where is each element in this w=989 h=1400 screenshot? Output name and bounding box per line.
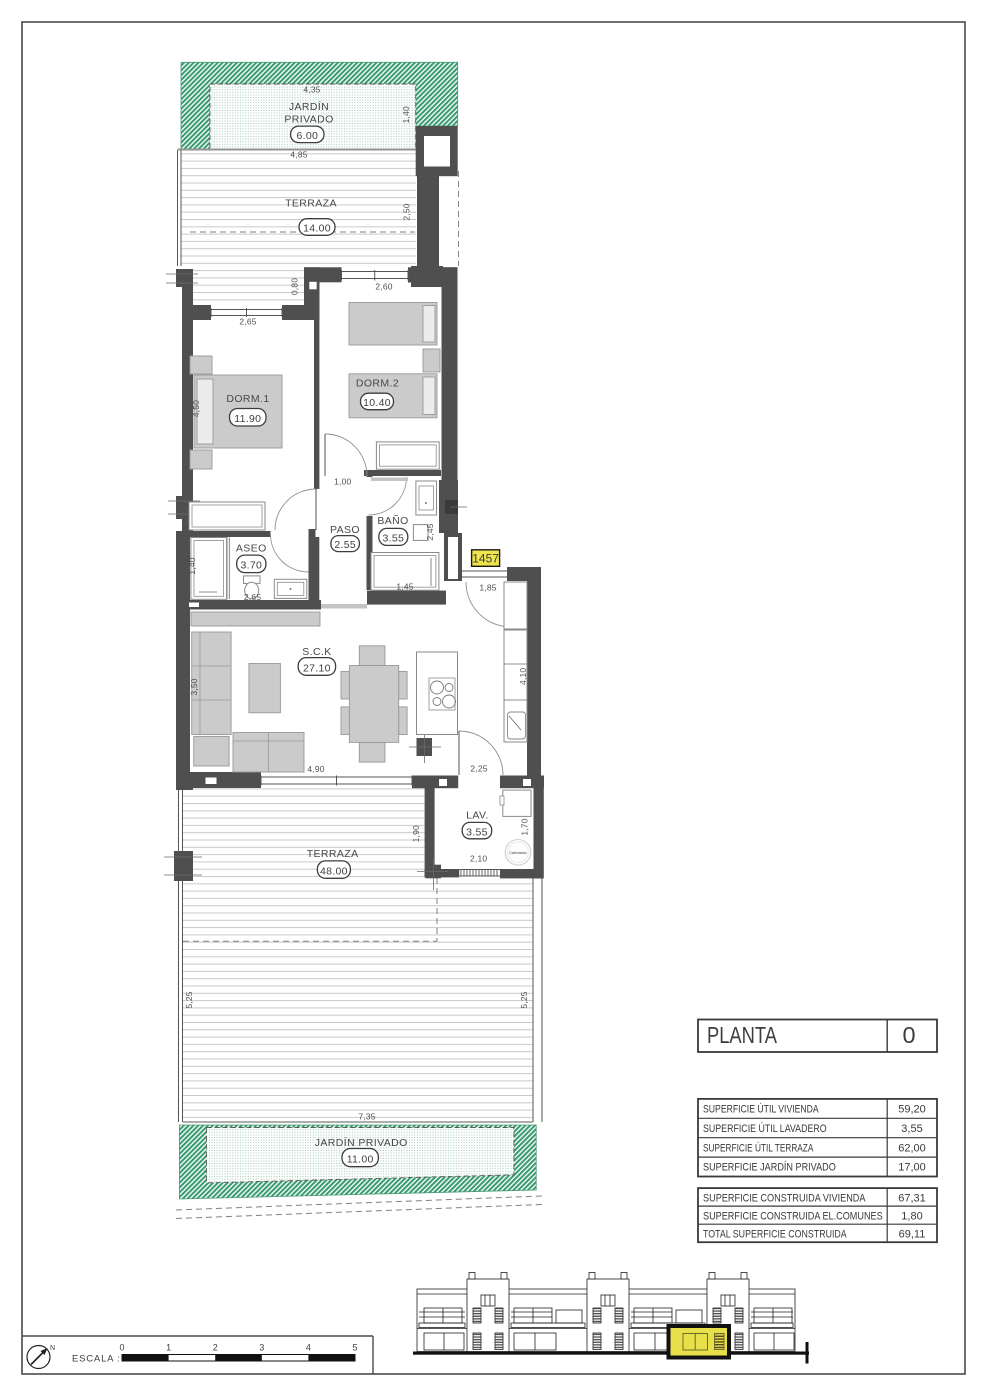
svg-text:PRIVADO: PRIVADO [284, 114, 333, 126]
svg-text:SUPERFICIE CONSTRUIDA VIVIENDA: SUPERFICIE CONSTRUIDA VIVIENDA [703, 1192, 866, 1204]
svg-text:59,20: 59,20 [898, 1104, 926, 1116]
svg-text:11.00: 11.00 [347, 1154, 374, 1166]
svg-text:11.90: 11.90 [234, 413, 261, 425]
svg-text:17,00: 17,00 [898, 1162, 926, 1174]
svg-text:N: N [50, 1345, 55, 1352]
svg-text:7,35: 7,35 [358, 1112, 375, 1122]
svg-text:1,45: 1,45 [396, 582, 413, 592]
svg-text:0: 0 [119, 1343, 124, 1353]
svg-text:SUPERFICIE JARDÍN PRIVADO: SUPERFICIE JARDÍN PRIVADO [703, 1161, 836, 1174]
svg-text:2.55: 2.55 [334, 539, 356, 551]
svg-text:4: 4 [306, 1343, 311, 1353]
svg-text:LAV.: LAV. [466, 809, 489, 821]
svg-text:2,45: 2,45 [425, 523, 435, 540]
svg-text:SUPERFICIE ÚTIL LAVADERO: SUPERFICIE ÚTIL LAVADERO [703, 1122, 827, 1135]
svg-text:1457: 1457 [472, 551, 499, 565]
svg-text:4,85: 4,85 [290, 149, 307, 159]
svg-text:3: 3 [259, 1343, 264, 1353]
svg-text:TERRAZA: TERRAZA [285, 198, 337, 210]
svg-text:DORM.2: DORM.2 [356, 378, 399, 390]
svg-text:SUPERFICIE CONSTRUIDA EL.COMUN: SUPERFICIE CONSTRUIDA EL.COMUNES [703, 1210, 883, 1222]
svg-text:2,10: 2,10 [470, 854, 487, 864]
svg-text:DORM.1: DORM.1 [226, 393, 269, 405]
svg-text:BAÑO: BAÑO [377, 514, 408, 527]
svg-text:5,25: 5,25 [184, 991, 194, 1008]
svg-text:TOTAL SUPERFICIE CONSTRUIDA: TOTAL SUPERFICIE CONSTRUIDA [703, 1229, 847, 1241]
svg-text:1,40: 1,40 [401, 106, 411, 123]
svg-text:2,50: 2,50 [402, 203, 412, 220]
svg-text:3.55: 3.55 [466, 826, 488, 838]
svg-text:1,40: 1,40 [187, 557, 197, 574]
svg-text:2,60: 2,60 [375, 282, 392, 292]
svg-text:0: 0 [902, 1022, 915, 1048]
svg-text:S.C.K: S.C.K [302, 646, 331, 658]
svg-text:4,90: 4,90 [307, 764, 324, 774]
svg-text:62,00: 62,00 [898, 1142, 926, 1154]
svg-text:JARDÍN PRIVADO: JARDÍN PRIVADO [315, 1136, 408, 1149]
svg-text:1,70: 1,70 [519, 818, 529, 835]
svg-text:3.70: 3.70 [240, 560, 262, 572]
svg-text:SUPERFICIE ÚTIL VIVIENDA: SUPERFICIE ÚTIL VIVIENDA [703, 1103, 819, 1116]
svg-text:14.00: 14.00 [303, 223, 331, 235]
svg-text:4,50: 4,50 [191, 400, 201, 417]
svg-text:1,00: 1,00 [334, 477, 351, 487]
svg-text:3,55: 3,55 [901, 1123, 922, 1135]
svg-text:1: 1 [166, 1343, 171, 1353]
svg-text:2,65: 2,65 [244, 592, 261, 602]
svg-text:67,31: 67,31 [898, 1192, 926, 1204]
svg-text:27.10: 27.10 [303, 662, 331, 674]
svg-text:2,65: 2,65 [239, 317, 256, 327]
svg-text:0,80: 0,80 [289, 278, 299, 295]
svg-text:1,85: 1,85 [479, 583, 496, 593]
svg-text:1,90: 1,90 [411, 825, 421, 842]
svg-text:3,50: 3,50 [189, 678, 199, 695]
svg-text:69,11: 69,11 [899, 1229, 926, 1241]
svg-text:SUPERFICIE ÚTIL TERRAZA: SUPERFICIE ÚTIL TERRAZA [703, 1141, 814, 1154]
svg-text:ESCALA :: ESCALA : [72, 1354, 121, 1365]
svg-text:5: 5 [352, 1343, 357, 1353]
svg-text:TERRAZA: TERRAZA [307, 848, 359, 860]
svg-text:1,80: 1,80 [901, 1210, 922, 1222]
svg-text:ASEO: ASEO [236, 543, 267, 555]
svg-text:PASO: PASO [330, 524, 360, 536]
svg-text:10.40: 10.40 [363, 397, 391, 409]
svg-text:PLANTA: PLANTA [707, 1022, 777, 1048]
svg-text:6.00: 6.00 [296, 130, 318, 142]
svg-text:48.00: 48.00 [320, 866, 348, 878]
svg-text:4,10: 4,10 [518, 668, 528, 685]
svg-text:Calentador: Calentador [509, 851, 527, 855]
svg-text:2,25: 2,25 [470, 764, 487, 774]
svg-text:5,25: 5,25 [519, 991, 529, 1008]
svg-text:2: 2 [213, 1343, 218, 1353]
svg-text:3.55: 3.55 [382, 533, 404, 545]
svg-text:JARDÍN: JARDÍN [289, 100, 329, 113]
svg-text:4,35: 4,35 [303, 85, 320, 95]
